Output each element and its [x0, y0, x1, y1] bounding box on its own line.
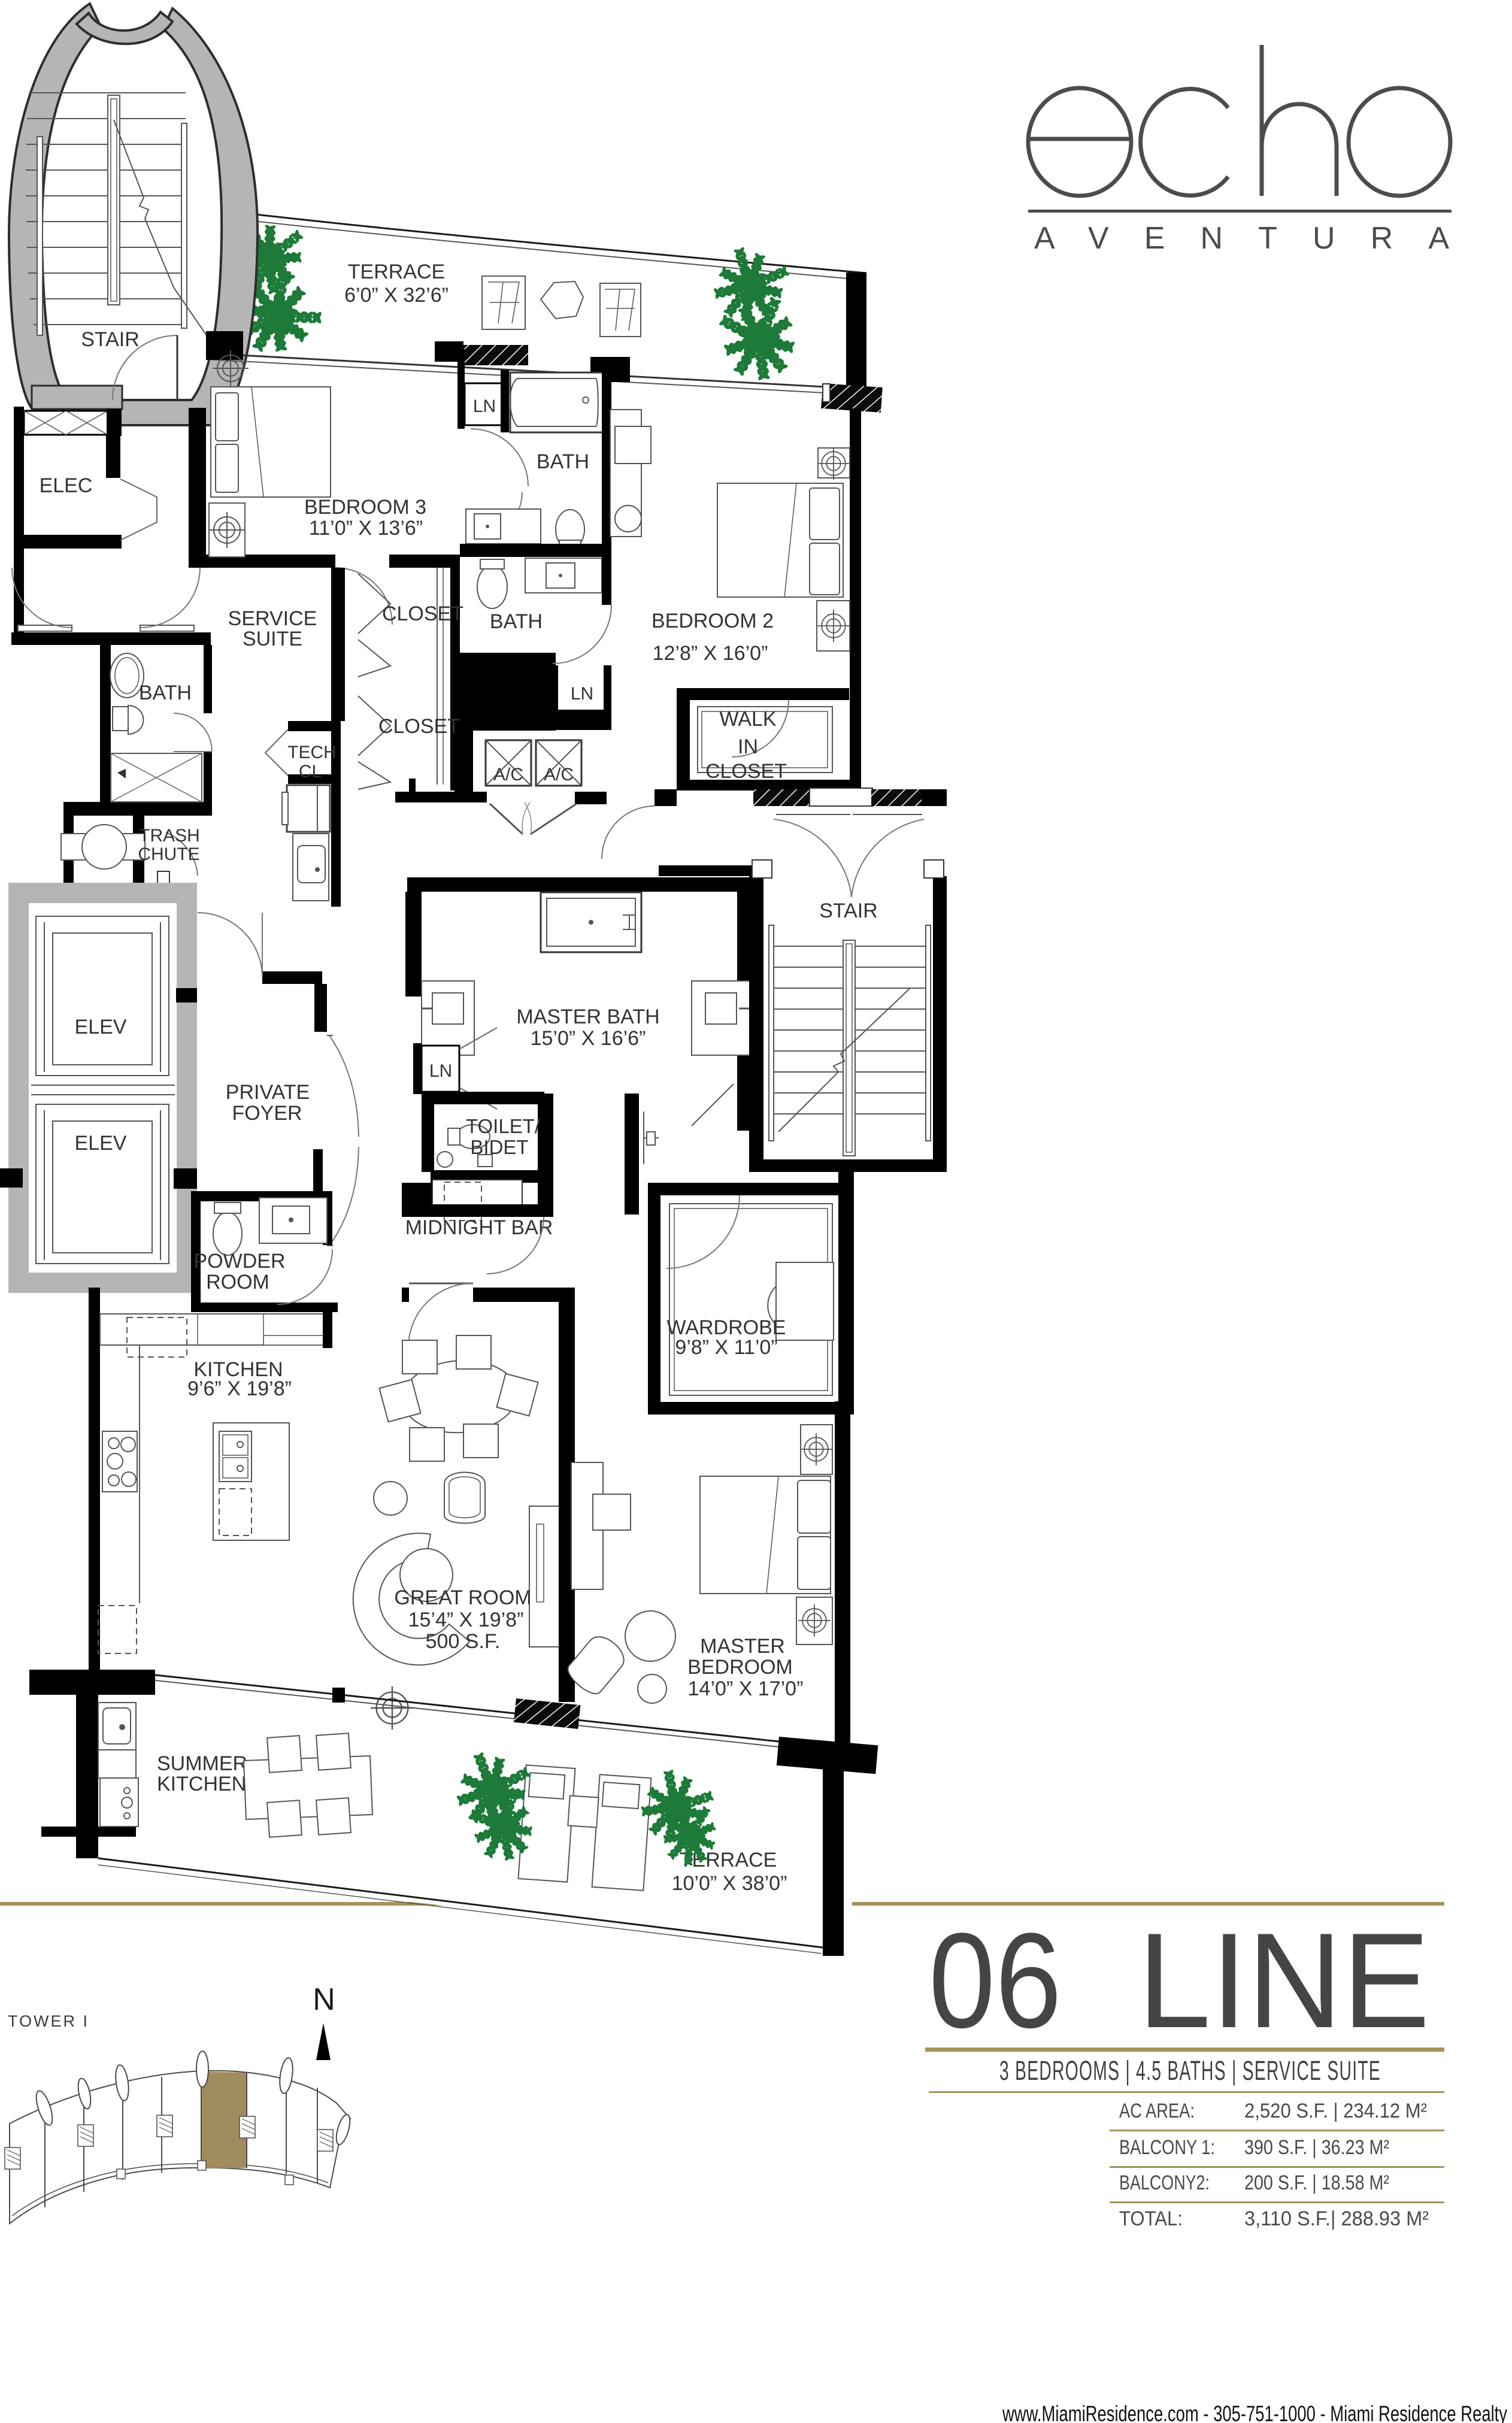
svg-text:390 S.F. | 36.23 M²: 390 S.F. | 36.23 M² [1244, 2136, 1389, 2159]
svg-text:A/C: A/C [544, 765, 574, 785]
svg-text:TERRACE: TERRACE [348, 261, 445, 283]
svg-text:STAIR: STAIR [81, 328, 140, 351]
svg-text:PRIVATE: PRIVATE [226, 1081, 310, 1104]
svg-text:9’6” X 19’8”: 9’6” X 19’8” [187, 1377, 292, 1400]
svg-text:TERRACE: TERRACE [680, 1849, 777, 1871]
svg-text:FOYER: FOYER [232, 1102, 302, 1125]
svg-text:CL: CL [299, 762, 322, 782]
svg-text:TOILET/: TOILET/ [466, 1115, 541, 1137]
svg-text:CLOSET: CLOSET [705, 760, 787, 783]
svg-text:2,520 S.F. | 234.12 M²: 2,520 S.F. | 234.12 M² [1244, 2100, 1427, 2122]
svg-text:N: N [313, 1982, 335, 2017]
svg-text:14’0” X 17’0”: 14’0” X 17’0” [688, 1677, 804, 1700]
svg-text:BALCONY 1:: BALCONY 1: [1119, 2136, 1215, 2159]
svg-text:CLOSET: CLOSET [378, 715, 460, 738]
svg-text:3,110 S.F.| 288.93 M²: 3,110 S.F.| 288.93 M² [1244, 2207, 1429, 2230]
svg-text:CLOSET: CLOSET [382, 602, 463, 625]
svg-text:MIDNIGHT BAR: MIDNIGHT BAR [405, 1216, 553, 1239]
svg-text:STAIR: STAIR [819, 899, 878, 922]
svg-text:BEDROOM: BEDROOM [687, 1656, 793, 1679]
svg-text:BIDET: BIDET [470, 1136, 528, 1158]
svg-text:MASTER: MASTER [700, 1635, 785, 1658]
svg-text:WALK: WALK [719, 708, 776, 731]
svg-text:KITCHEN: KITCHEN [157, 1773, 246, 1795]
svg-text:POWDER: POWDER [194, 1250, 286, 1273]
svg-text:ELEV: ELEV [75, 1132, 127, 1155]
svg-text:3 BEDROOMS | 4.5 BATHS | SERVI: 3 BEDROOMS | 4.5 BATHS | SERVICE SUITE [999, 2055, 1381, 2086]
svg-text:MASTER BATH: MASTER BATH [516, 1005, 659, 1028]
svg-text:11’0” X 13’6”: 11’0” X 13’6” [309, 517, 423, 540]
svg-text:BALCONY2:: BALCONY2: [1119, 2171, 1210, 2194]
svg-text:10’0” X 38’0”: 10’0” X 38’0” [672, 1872, 787, 1895]
svg-text:IN: IN [738, 735, 758, 758]
svg-text:LN: LN [429, 1061, 452, 1081]
svg-text:www.MiamiResidence.com - 305: www.MiamiResidence.com - 305-751-1000 - … [1002, 2401, 1507, 2423]
svg-text:TRASH: TRASH [139, 826, 200, 846]
svg-text:A/C: A/C [493, 765, 523, 785]
svg-text:500 S.F.: 500 S.F. [426, 1630, 501, 1653]
svg-text:06: 06 [929, 1904, 1062, 2056]
svg-text:AC AREA:: AC AREA: [1119, 2100, 1195, 2122]
svg-text:ROOM: ROOM [206, 1271, 269, 1294]
svg-text:ELEV: ELEV [75, 1016, 127, 1038]
svg-text:SUITE: SUITE [243, 628, 302, 650]
svg-text:TOWER I: TOWER I [8, 2012, 89, 2030]
svg-text:15’0” X 16’6”: 15’0” X 16’6” [531, 1027, 646, 1050]
svg-text:GREAT ROOM: GREAT ROOM [394, 1586, 531, 1609]
svg-text:BEDROOM 2: BEDROOM 2 [652, 610, 774, 632]
svg-text:LINE: LINE [1138, 1904, 1430, 2056]
svg-text:LN: LN [571, 684, 593, 704]
svg-text:SUMMER: SUMMER [157, 1752, 247, 1775]
svg-text:TOTAL:: TOTAL: [1119, 2207, 1183, 2230]
svg-text:200 S.F. | 18.58 M²: 200 S.F. | 18.58 M² [1244, 2171, 1389, 2194]
svg-text:BATH: BATH [490, 610, 543, 633]
svg-text:ELEC: ELEC [40, 474, 93, 497]
svg-text:SERVICE: SERVICE [228, 607, 317, 630]
svg-text:9’8” X 11’0”: 9’8” X 11’0” [675, 1336, 777, 1359]
svg-text:12’8” X 16’0”: 12’8” X 16’0” [653, 642, 768, 665]
svg-text:CHUTE: CHUTE [138, 844, 199, 864]
svg-text:6’0” X 32’6”: 6’0” X 32’6” [344, 284, 449, 307]
svg-text:BATH: BATH [139, 682, 192, 704]
svg-text:BATH: BATH [537, 450, 589, 473]
svg-text:15’4” X 19’8”: 15’4” X 19’8” [408, 1609, 524, 1631]
svg-text:LN: LN [473, 396, 496, 416]
svg-text:BEDROOM 3: BEDROOM 3 [304, 496, 426, 519]
svg-text:TECH: TECH [287, 743, 337, 762]
